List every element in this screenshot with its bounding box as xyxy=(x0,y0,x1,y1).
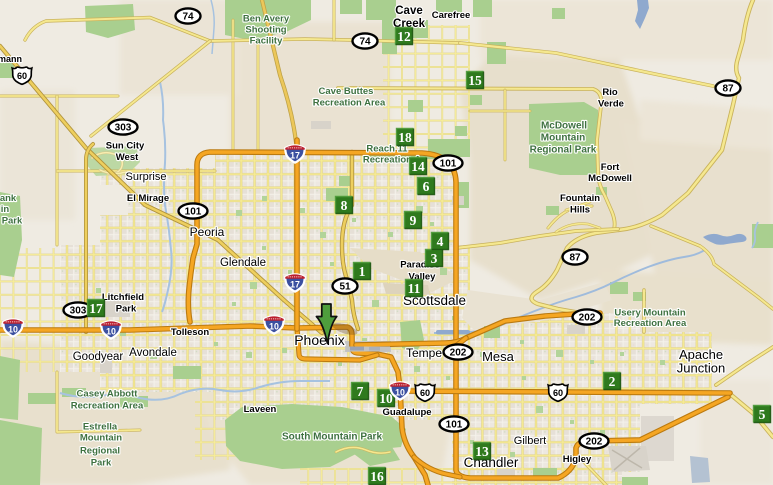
svg-text:Park: Park xyxy=(91,458,112,469)
svg-text:El Mirage: El Mirage xyxy=(127,193,169,204)
svg-text:Fort: Fort xyxy=(601,162,620,173)
svg-text:Guadalupe: Guadalupe xyxy=(382,407,431,418)
svg-text:14: 14 xyxy=(411,159,425,174)
svg-text:Usery Mountain: Usery Mountain xyxy=(614,308,685,319)
svg-text:Tolleson: Tolleson xyxy=(171,327,210,338)
svg-text:Avondale: Avondale xyxy=(129,347,177,359)
svg-text:6: 6 xyxy=(423,179,430,194)
svg-text:16: 16 xyxy=(370,469,384,484)
svg-text:Fountain: Fountain xyxy=(560,193,600,204)
svg-text:74: 74 xyxy=(182,12,194,23)
svg-text:2: 2 xyxy=(609,374,616,389)
svg-text:10: 10 xyxy=(8,325,18,335)
svg-text:Peoria: Peoria xyxy=(190,225,225,239)
svg-text:87: 87 xyxy=(722,84,734,95)
svg-text:Mountain: Mountain xyxy=(80,433,122,444)
svg-text:202: 202 xyxy=(586,437,603,448)
svg-text:11: 11 xyxy=(408,281,421,296)
svg-text:Facility: Facility xyxy=(250,36,283,47)
svg-text:Hills: Hills xyxy=(570,205,590,216)
svg-text:Cave Buttes: Cave Buttes xyxy=(319,86,374,97)
svg-text:101: 101 xyxy=(185,207,202,218)
svg-text:Glendale: Glendale xyxy=(220,257,266,269)
svg-text:74: 74 xyxy=(359,37,371,48)
svg-text:17: 17 xyxy=(290,151,300,161)
svg-text:60: 60 xyxy=(553,388,563,398)
svg-text:15: 15 xyxy=(468,73,482,88)
svg-text:101: 101 xyxy=(440,159,457,170)
svg-text:Laveen: Laveen xyxy=(244,404,277,415)
svg-text:101: 101 xyxy=(446,420,463,431)
svg-text:Recreation Area: Recreation Area xyxy=(614,318,687,329)
svg-text:Casey Abbott: Casey Abbott xyxy=(77,389,139,400)
svg-text:Rio: Rio xyxy=(602,87,618,98)
svg-text:10: 10 xyxy=(106,327,116,337)
svg-text:60: 60 xyxy=(17,71,27,81)
svg-text:13: 13 xyxy=(475,444,489,459)
svg-text:Recreation Area: Recreation Area xyxy=(313,98,386,109)
svg-text:South Mountain Park: South Mountain Park xyxy=(282,432,382,443)
svg-text:in: in xyxy=(1,204,10,215)
svg-text:Junction: Junction xyxy=(677,361,725,376)
svg-text:17: 17 xyxy=(89,301,103,316)
svg-text:9: 9 xyxy=(410,213,417,228)
svg-text:Estrella: Estrella xyxy=(83,422,118,433)
svg-text:1: 1 xyxy=(359,264,366,279)
svg-text:McDowell: McDowell xyxy=(588,173,632,184)
svg-text:mann: mann xyxy=(0,54,22,64)
svg-text:Litchfield: Litchfield xyxy=(102,292,144,303)
svg-text:51: 51 xyxy=(339,282,351,293)
svg-text:Mountain: Mountain xyxy=(541,133,585,144)
svg-text:12: 12 xyxy=(397,29,411,44)
svg-text:ank: ank xyxy=(0,193,17,204)
svg-text:West: West xyxy=(116,152,139,163)
svg-text:202: 202 xyxy=(579,313,596,324)
svg-text:Park: Park xyxy=(116,304,137,315)
svg-text:Higley: Higley xyxy=(563,454,592,465)
svg-text:Verde: Verde xyxy=(598,99,624,110)
svg-text:Cave: Cave xyxy=(395,5,423,17)
svg-text:303: 303 xyxy=(70,306,87,317)
svg-text:Park: Park xyxy=(2,216,23,227)
svg-text:4: 4 xyxy=(437,234,444,249)
svg-text:Mesa: Mesa xyxy=(482,349,515,364)
svg-text:Regional Park: Regional Park xyxy=(530,145,597,156)
svg-text:7: 7 xyxy=(357,384,364,399)
svg-text:202: 202 xyxy=(450,348,467,359)
svg-text:Chandler: Chandler xyxy=(464,455,519,470)
svg-text:Phoenix: Phoenix xyxy=(294,332,345,348)
svg-text:Tempe: Tempe xyxy=(406,346,442,360)
svg-text:McDowell: McDowell xyxy=(541,121,587,132)
svg-text:18: 18 xyxy=(398,130,412,145)
svg-text:5: 5 xyxy=(759,407,766,422)
svg-text:Shooting: Shooting xyxy=(245,25,286,36)
svg-text:17: 17 xyxy=(290,280,300,290)
svg-text:Recreation Area: Recreation Area xyxy=(71,401,144,412)
svg-text:3: 3 xyxy=(431,251,438,266)
svg-text:10: 10 xyxy=(269,322,279,332)
svg-text:Surprise: Surprise xyxy=(126,171,167,183)
svg-text:Regional: Regional xyxy=(80,446,120,457)
svg-text:Goodyear: Goodyear xyxy=(73,351,124,363)
svg-text:8: 8 xyxy=(341,198,348,213)
svg-text:10: 10 xyxy=(395,388,405,398)
svg-text:Gilbert: Gilbert xyxy=(514,435,546,447)
svg-text:303: 303 xyxy=(115,123,132,134)
svg-text:60: 60 xyxy=(420,388,430,398)
svg-text:Carefree: Carefree xyxy=(432,10,471,21)
svg-text:Sun City: Sun City xyxy=(106,141,145,152)
svg-text:Ben Avery: Ben Avery xyxy=(243,14,290,25)
svg-text:87: 87 xyxy=(569,253,581,264)
